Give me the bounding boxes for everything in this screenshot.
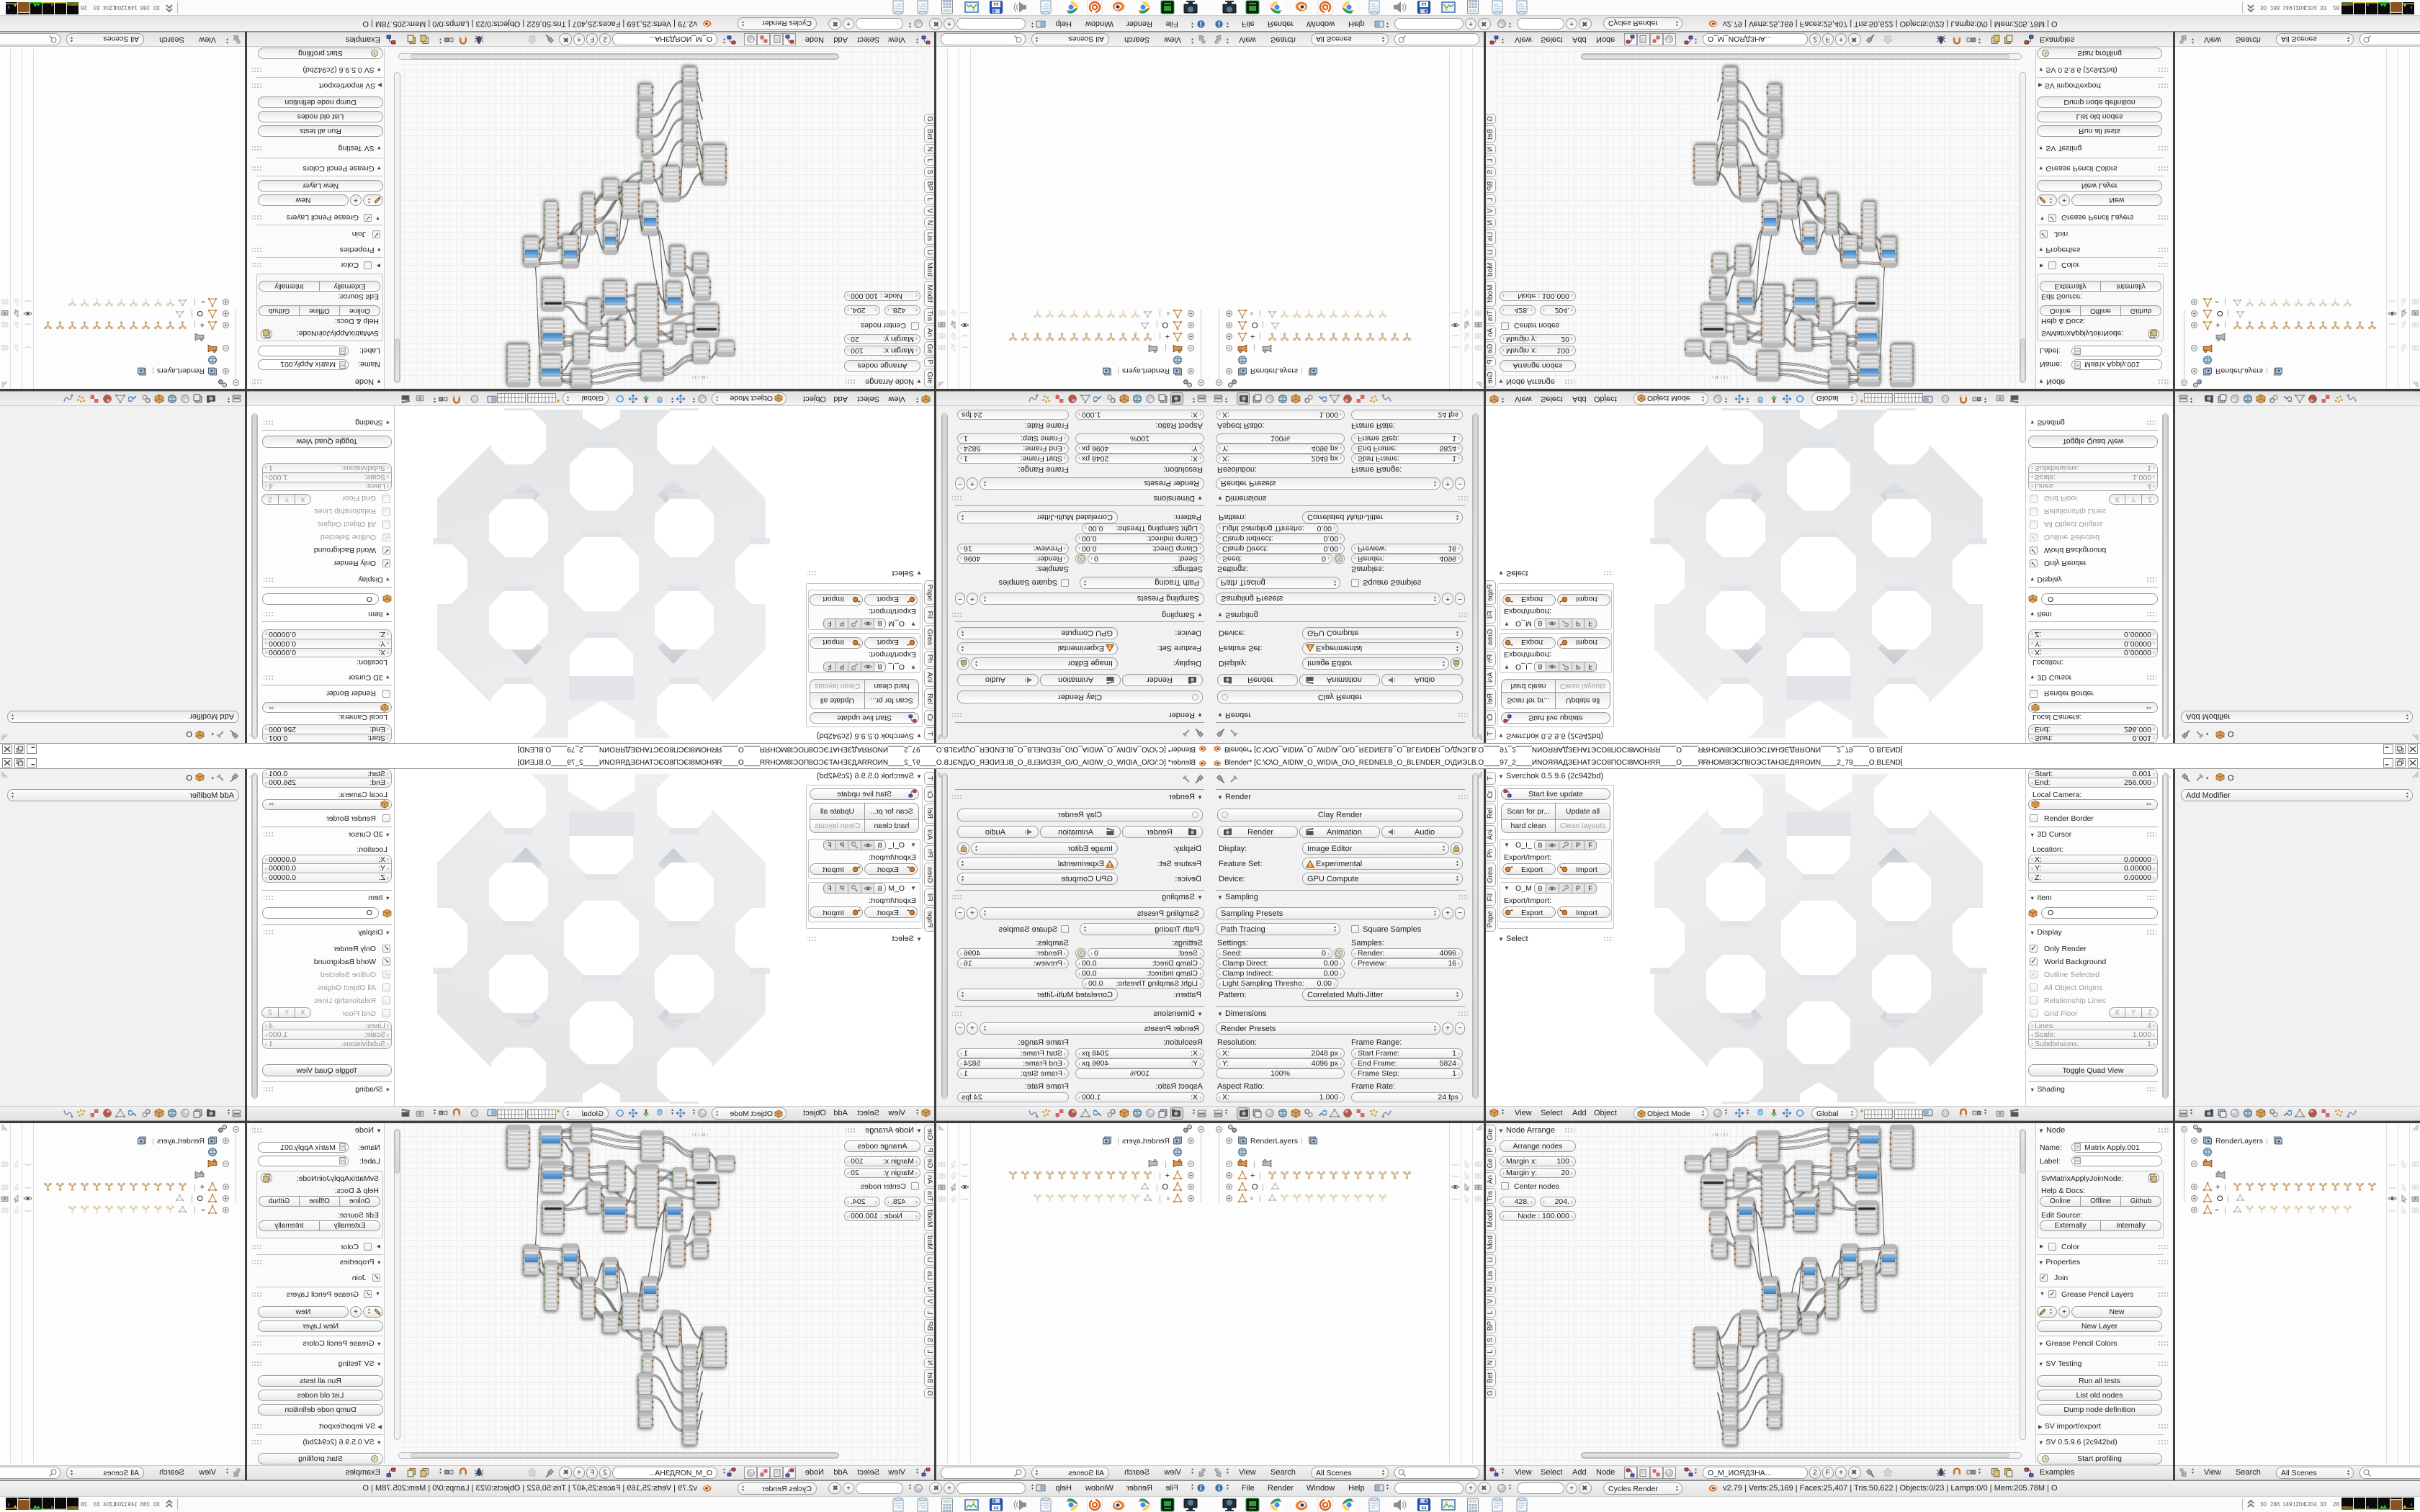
svg-text:64: 64 <box>1421 1506 1427 1511</box>
svg-text:64: 64 <box>1421 1 1427 6</box>
svg-text:64: 64 <box>993 1506 999 1511</box>
svg-text:64: 64 <box>993 1 999 6</box>
